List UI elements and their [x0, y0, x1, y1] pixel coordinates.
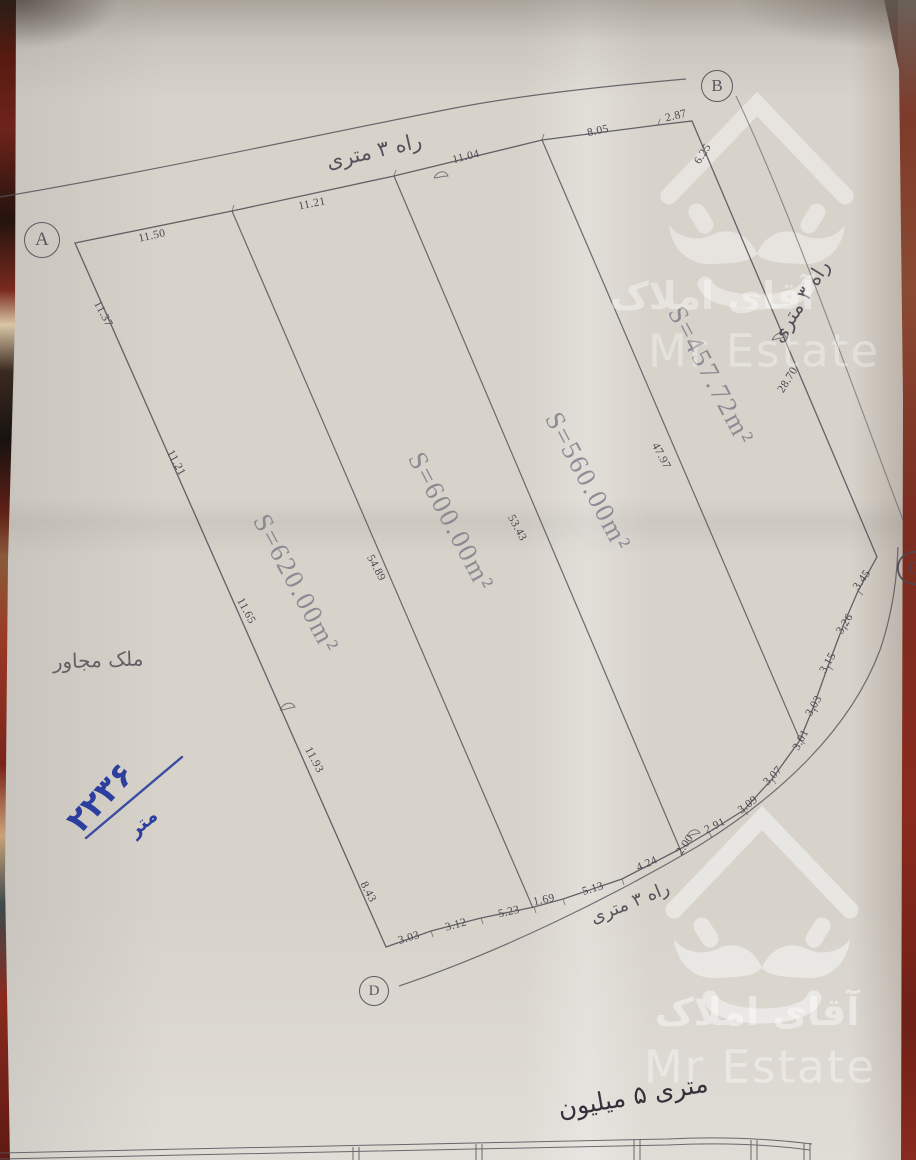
corner-marker-B: B — [701, 70, 733, 102]
watermark-brand-en-bottom: Mr Estate — [644, 1041, 876, 1094]
bottom-table-border — [0, 1138, 812, 1160]
watermark-brand-fa-bottom: آقای املاک — [655, 990, 860, 1034]
watermark-brand-en-top: Mr Estate — [648, 325, 880, 378]
road-top-edge — [0, 79, 686, 197]
survey-drawing — [0, 0, 916, 1160]
watermark-brand-fa-top: آقای املاک — [610, 274, 815, 318]
corner-marker-D: D — [359, 976, 389, 1006]
photo-of-land-survey-plan: 11.5011.2111.048.052.876.2528.7011.3711.… — [0, 0, 916, 1160]
watermark-logo-bottom — [674, 818, 850, 1016]
corner-marker-A: A — [24, 222, 60, 258]
adjacent-property-note: ملک مجاور — [52, 646, 143, 673]
